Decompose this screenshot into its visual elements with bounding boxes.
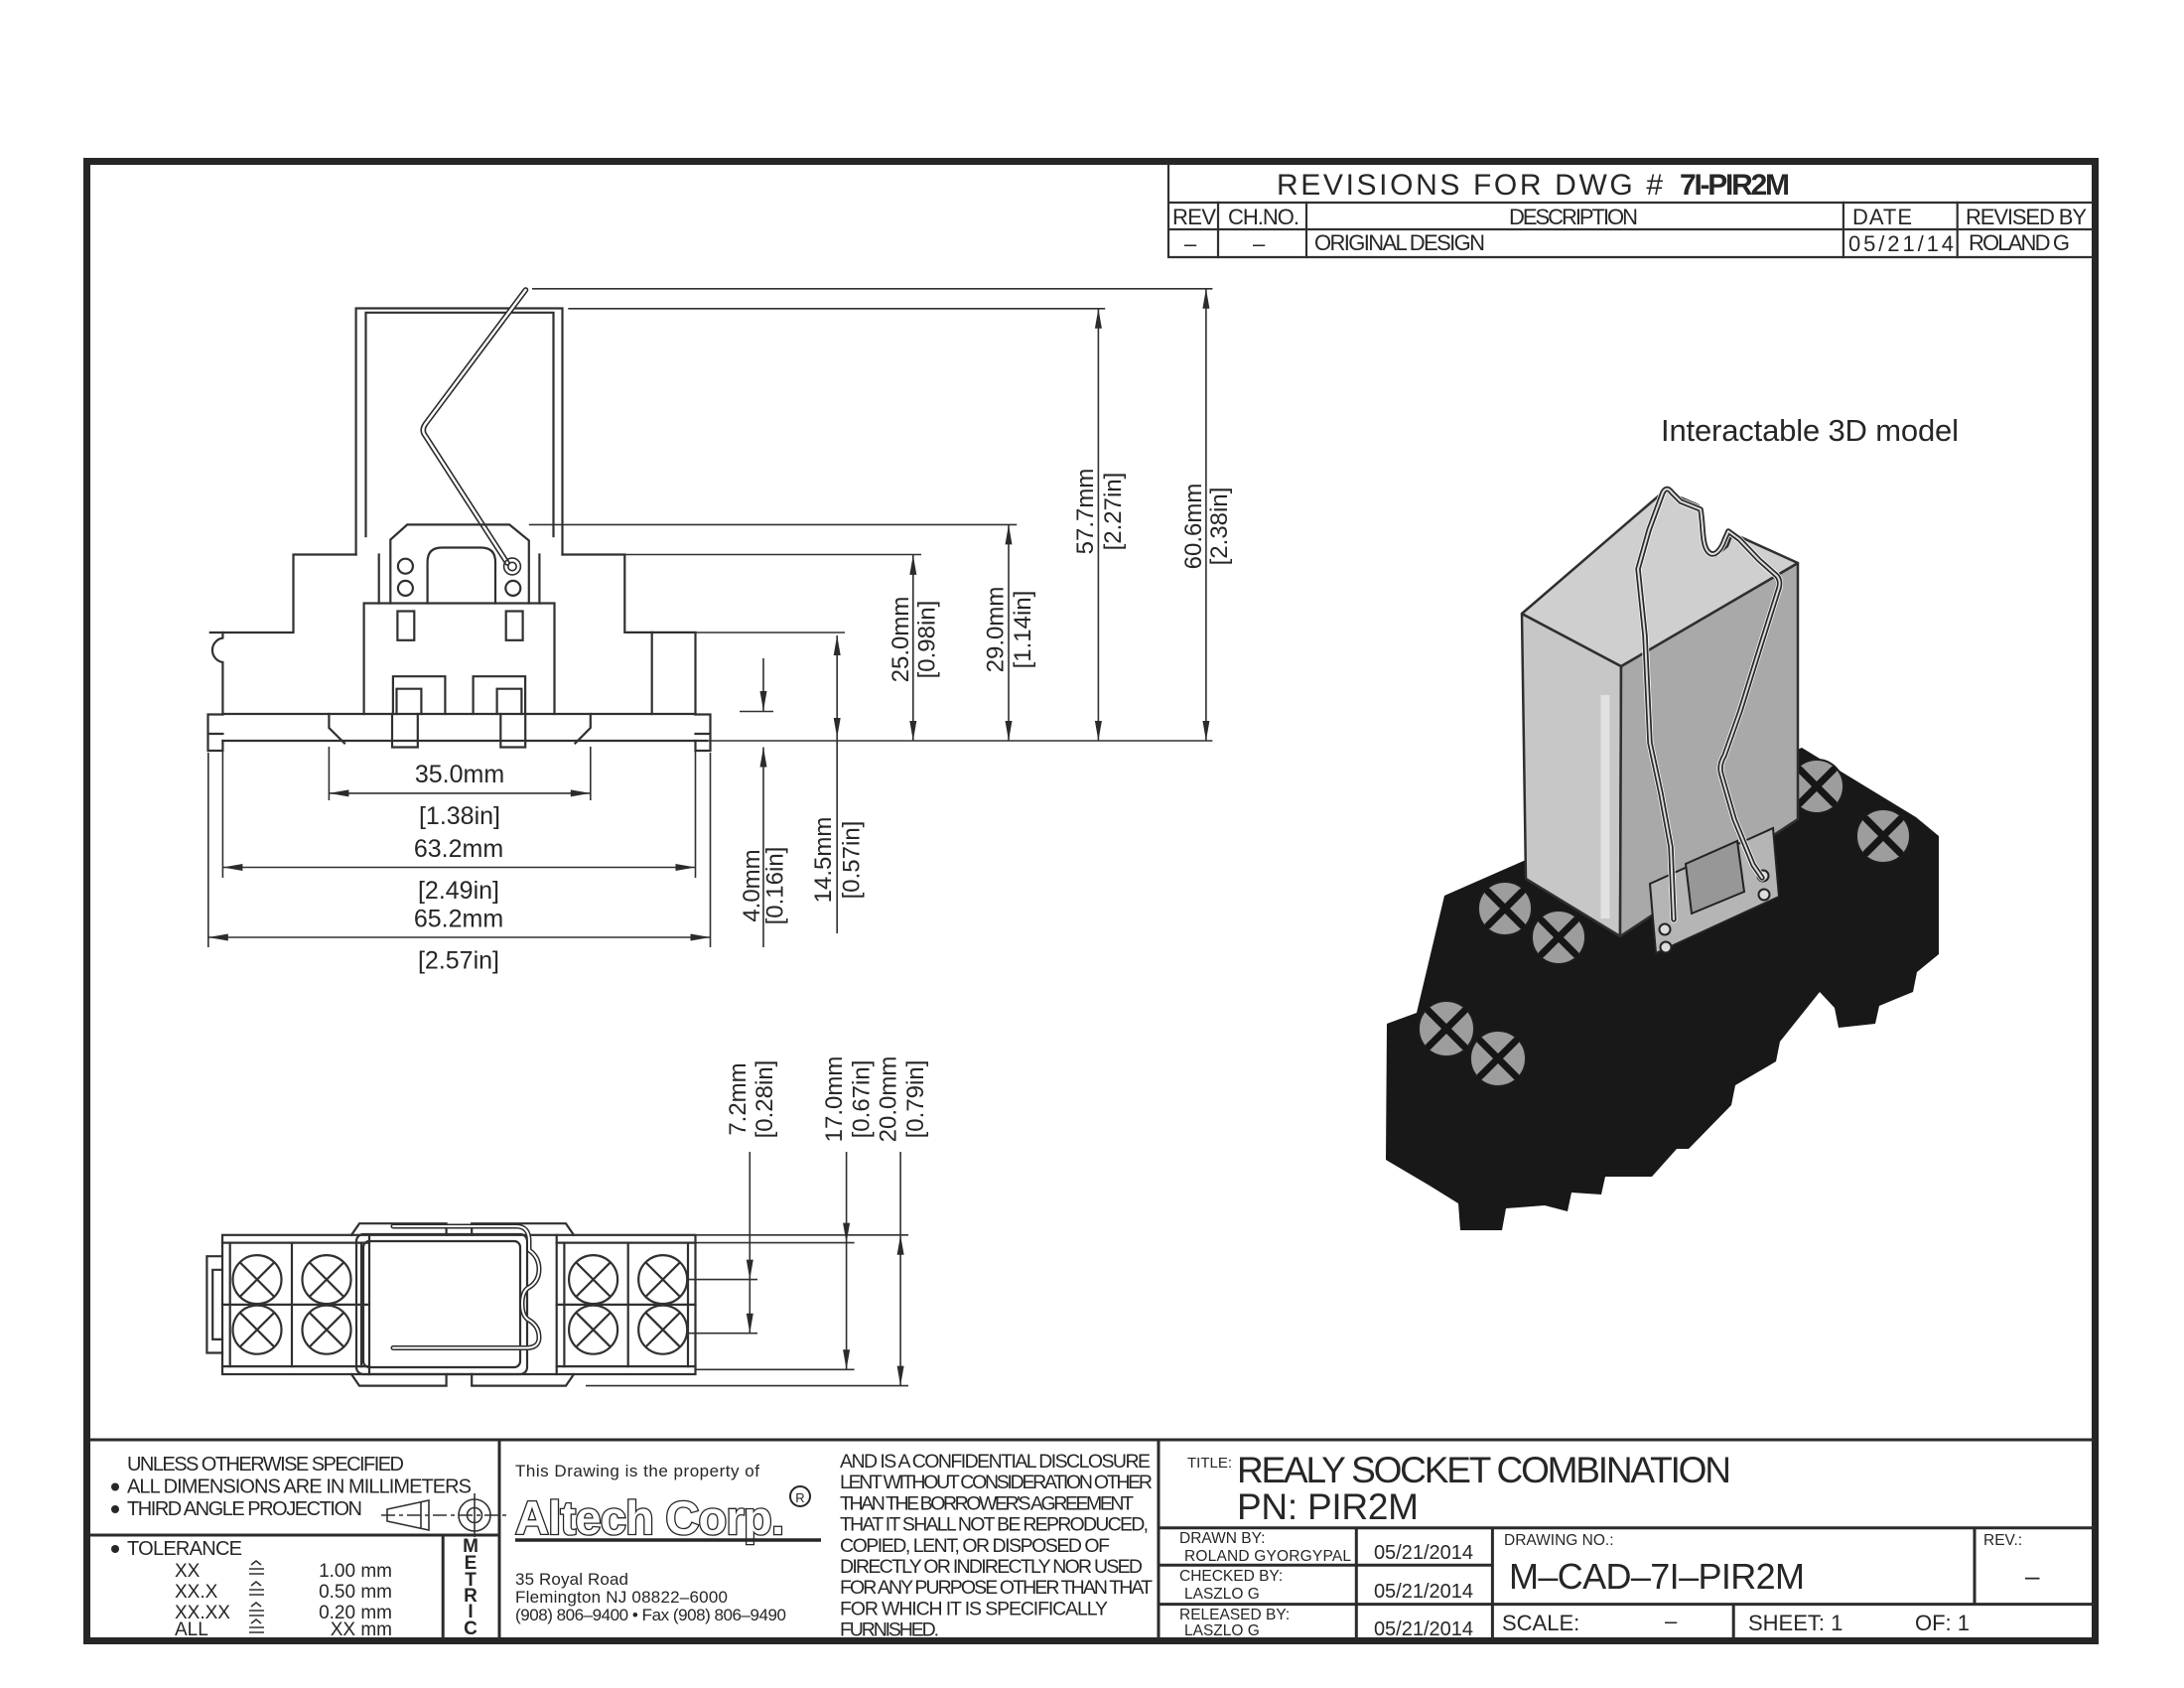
svg-text:65.2mm: 65.2mm <box>414 906 503 933</box>
svg-text:60.6mm: 60.6mm <box>1180 484 1207 570</box>
svg-text:–: – <box>1253 231 1266 256</box>
svg-text:FURNISHED.: FURNISHED. <box>840 1619 939 1641</box>
svg-text:XX: XX <box>175 1561 201 1582</box>
svg-text:ALL DIMENSIONS ARE IN MILL: ALL DIMENSIONS ARE IN MILLIMETERS <box>127 1477 472 1498</box>
svg-text:THAN THE BORROWER'S AGREEMENT: THAN THE BORROWER'S AGREEMENT <box>840 1492 1134 1514</box>
svg-text:DATE: DATE <box>1852 205 1912 229</box>
svg-text:[2.49in]: [2.49in] <box>418 877 499 905</box>
svg-text:29.0mm: 29.0mm <box>983 587 1010 673</box>
svg-text:Flemington NJ 08822–6000: Flemington NJ 08822–6000 <box>515 1588 728 1607</box>
svg-text:25.0mm: 25.0mm <box>887 597 914 683</box>
svg-text:–: – <box>2025 1561 2040 1591</box>
svg-text:REVISED BY: REVISED BY <box>1966 205 2087 229</box>
svg-text:35.0mm: 35.0mm <box>415 761 504 788</box>
svg-text:7I-PIR2M: 7I-PIR2M <box>1680 169 1791 202</box>
svg-text:CHECKED BY:: CHECKED BY: <box>1179 1568 1283 1585</box>
svg-text:XX mm: XX mm <box>331 1619 392 1640</box>
svg-text:[0.67in]: [0.67in] <box>848 1060 875 1139</box>
svg-text:20.0mm: 20.0mm <box>876 1056 902 1143</box>
svg-text:ROLAND G: ROLAND G <box>1969 230 2070 255</box>
svg-text:ALL: ALL <box>175 1619 208 1640</box>
svg-text:REV: REV <box>1172 205 1216 229</box>
svg-text:This Drawing is the proper: This Drawing is the property of <box>515 1462 759 1480</box>
svg-text:–: – <box>1665 1609 1678 1633</box>
svg-text:[0.16in]: [0.16in] <box>761 847 788 925</box>
svg-text:DESCRIPTION: DESCRIPTION <box>1509 205 1638 229</box>
svg-text:SCALE:: SCALE: <box>1502 1611 1579 1635</box>
svg-text:COPIED, LENT, OR DISPOSED OF: COPIED, LENT, OR DISPOSED OF <box>840 1535 1110 1557</box>
svg-text:XX.X: XX.X <box>175 1582 218 1603</box>
svg-text:TITLE:: TITLE: <box>1187 1455 1232 1472</box>
svg-text:LENT WITHOUT CONSIDERATION OTH: LENT WITHOUT CONSIDERATION OTHER <box>840 1472 1153 1493</box>
svg-text:AND IS A CONFIDENTIAL DISCLOSU: AND IS A CONFIDENTIAL DISCLOSURE <box>840 1451 1151 1473</box>
svg-text:[1.14in]: [1.14in] <box>1010 591 1036 669</box>
svg-text:M–CAD–7I–PIR2M: M–CAD–7I–PIR2M <box>1509 1556 1805 1597</box>
svg-text:Interactable 3D model: Interactable 3D model <box>1661 413 1959 448</box>
svg-text:CH.NO.: CH.NO. <box>1228 205 1299 229</box>
svg-text:RELEASED BY:: RELEASED BY: <box>1179 1607 1290 1623</box>
svg-text:LASZLO G: LASZLO G <box>1184 1622 1260 1639</box>
svg-text:–: – <box>1184 231 1197 256</box>
svg-text:[2.57in]: [2.57in] <box>418 947 499 975</box>
svg-text:[0.57in]: [0.57in] <box>838 821 865 900</box>
svg-text:35 Royal Road: 35 Royal Road <box>515 1570 628 1589</box>
svg-text:REV.:: REV.: <box>1983 1532 2022 1549</box>
svg-text:0.50 mm: 0.50 mm <box>319 1582 392 1603</box>
svg-text:THAT IT SHALL NOT BE REPRODUCE: THAT IT SHALL NOT BE REPRODUCED, <box>840 1514 1149 1536</box>
svg-text:14.5mm: 14.5mm <box>810 817 837 904</box>
svg-text:REVISIONS FOR DWG #: REVISIONS FOR DWG # <box>1277 169 1664 202</box>
svg-text:[0.98in]: [0.98in] <box>914 601 941 679</box>
svg-text:7.2mm: 7.2mm <box>725 1062 751 1135</box>
svg-text:C: C <box>464 1618 478 1639</box>
svg-text:05/21/2014: 05/21/2014 <box>1374 1581 1473 1603</box>
svg-text:05/21/2014: 05/21/2014 <box>1374 1618 1473 1640</box>
svg-text:[2.27in]: [2.27in] <box>1100 473 1127 551</box>
svg-text:17.0mm: 17.0mm <box>821 1056 848 1143</box>
svg-text:1.00 mm: 1.00 mm <box>319 1561 392 1582</box>
svg-text:[0.79in]: [0.79in] <box>902 1060 929 1139</box>
svg-text:[2.38in]: [2.38in] <box>1206 488 1233 566</box>
svg-text:63.2mm: 63.2mm <box>414 835 503 863</box>
svg-text:FOR WHICH IT IS SPECIFICALLY: FOR WHICH IT IS SPECIFICALLY <box>840 1598 1108 1619</box>
svg-text:ROLAND GYORGYPAL: ROLAND GYORGYPAL <box>1184 1548 1351 1565</box>
svg-text:57.7mm: 57.7mm <box>1072 469 1099 555</box>
svg-text:THIRD ANGLE PROJECTION: THIRD ANGLE PROJECTION <box>127 1498 362 1520</box>
svg-text:LASZLO G: LASZLO G <box>1184 1586 1260 1603</box>
svg-text:Altech Corp.: Altech Corp. <box>515 1491 785 1544</box>
svg-text:UNLESS OTHERWISE SPECIFIED: UNLESS OTHERWISE SPECIFIED <box>127 1454 404 1476</box>
svg-text:(908) 806–9400 • Fax (908) 806: (908) 806–9400 • Fax (908) 806–9490 <box>515 1606 786 1624</box>
svg-text:DRAWN BY:: DRAWN BY: <box>1179 1530 1265 1547</box>
svg-text:[0.28in]: [0.28in] <box>751 1060 778 1139</box>
svg-text:[1.38in]: [1.38in] <box>419 802 500 830</box>
svg-text:SHEET: 1: SHEET: 1 <box>1748 1611 1843 1635</box>
svg-text:REALY SOCKET COMBINATION: REALY SOCKET COMBINATION <box>1237 1450 1731 1490</box>
svg-text:ORIGINAL DESIGN: ORIGINAL DESIGN <box>1314 230 1485 255</box>
svg-text:PN: PIR2M: PN: PIR2M <box>1237 1486 1419 1527</box>
svg-text:FOR ANY PURPOSE OTHER THAN THA: FOR ANY PURPOSE OTHER THAN THAT <box>840 1577 1153 1599</box>
svg-text:05/21/2014: 05/21/2014 <box>1374 1542 1473 1564</box>
svg-text:DIRECTLY OR INDIRECTLY NOR USE: DIRECTLY OR INDIRECTLY NOR USED <box>840 1556 1143 1578</box>
svg-text:DRAWING NO.:: DRAWING NO.: <box>1504 1532 1614 1549</box>
svg-text:R: R <box>795 1490 804 1505</box>
svg-text:OF: 1: OF: 1 <box>1915 1611 1970 1635</box>
svg-text:TOLERANCE: TOLERANCE <box>127 1538 242 1560</box>
